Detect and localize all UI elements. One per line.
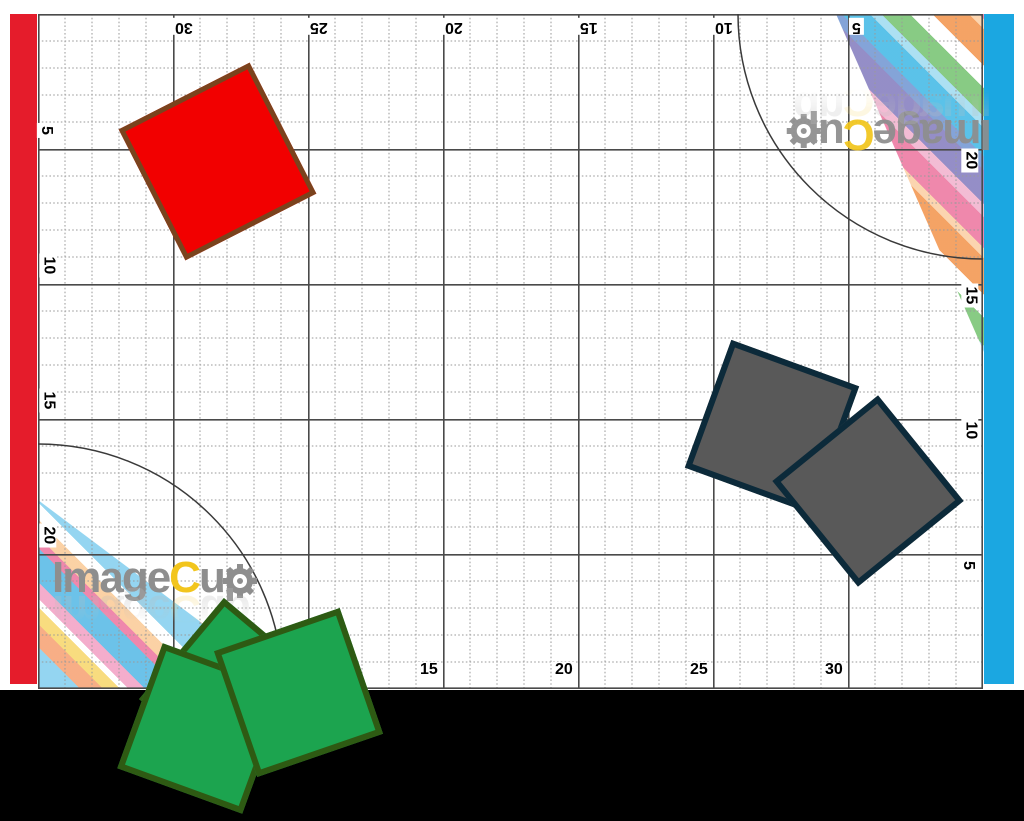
ruler-label-left-10: 10 bbox=[40, 254, 57, 278]
ruler-label-top-30: 30 bbox=[172, 18, 196, 35]
ruler-label-bottom-30: 30 bbox=[822, 662, 846, 679]
logo-reflection: ImageCup bbox=[786, 80, 992, 124]
ruler-label-left-5: 5 bbox=[37, 123, 54, 138]
logo-reflection-image: Image bbox=[875, 80, 992, 124]
ruler-label-left-15: 15 bbox=[40, 389, 57, 413]
cutting-mat: 30 25 20 15 10 5 15 20 25 30 5 10 15 20 … bbox=[0, 0, 1024, 690]
logo-reflection-p: p bbox=[795, 80, 820, 124]
logo-reflection-image: Image bbox=[52, 588, 169, 632]
ruler-label-top-5: 5 bbox=[849, 18, 864, 35]
ruler-label-bottom-25: 25 bbox=[687, 662, 711, 679]
ruler-label-top-20: 20 bbox=[442, 18, 466, 35]
ruler-label-left-20: 20 bbox=[40, 524, 57, 548]
ruler-label-right-15: 15 bbox=[962, 284, 979, 308]
ruler-label-bottom-15: 15 bbox=[417, 662, 441, 679]
logo-reflection-c: C bbox=[845, 80, 875, 124]
ruler-label-top-10: 10 bbox=[712, 18, 736, 35]
logo-reflection-c: C bbox=[169, 588, 199, 632]
ruler-label-right-5: 5 bbox=[959, 558, 976, 573]
ruler-label-top-25: 25 bbox=[307, 18, 331, 35]
logo-reflection-u: u bbox=[820, 80, 845, 124]
ruler-label-top-15: 15 bbox=[577, 18, 601, 35]
ruler-label-bottom-20: 20 bbox=[552, 662, 576, 679]
ruler-label-right-10: 10 bbox=[962, 419, 979, 443]
brand-logo-top-right: ImageCup ImageCup bbox=[786, 80, 992, 156]
